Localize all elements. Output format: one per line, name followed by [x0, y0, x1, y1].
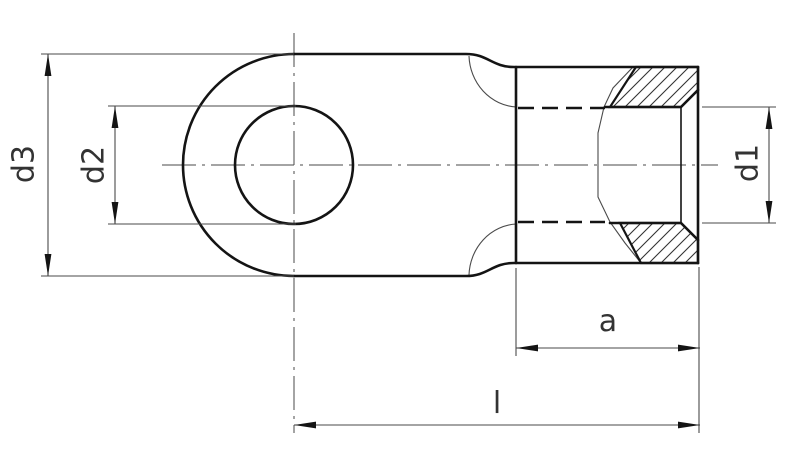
flare-arc-top — [469, 56, 516, 107]
drawing-svg: d3 d2 d1 a — [0, 0, 800, 466]
dim-label-d1: d1 — [731, 144, 766, 182]
dim-label-l: l — [493, 386, 501, 421]
a-arrow-right — [678, 345, 700, 352]
dim-a: a — [516, 267, 700, 433]
dim-d3: d3 — [7, 54, 295, 276]
hatch-top-wall — [610, 67, 698, 107]
dim-label-a: a — [599, 304, 617, 339]
d3-arrow-up — [45, 54, 52, 76]
d1-arrow-down — [766, 201, 773, 223]
dim-label-d2: d2 — [77, 146, 112, 184]
dim-l: l — [294, 386, 700, 428]
d1-arrow-up — [766, 107, 773, 129]
a-arrow-left — [516, 345, 538, 352]
l-arrow-left — [294, 422, 316, 429]
d2-arrow-down — [112, 202, 119, 224]
dim-label-d3: d3 — [7, 145, 42, 183]
outline-bottom — [294, 263, 698, 276]
technical-drawing: d3 d2 d1 a — [0, 0, 800, 466]
d3-arrow-down — [45, 254, 52, 276]
outline-top — [294, 54, 698, 67]
l-arrow-right — [678, 422, 700, 429]
d2-arrow-up — [112, 106, 119, 128]
